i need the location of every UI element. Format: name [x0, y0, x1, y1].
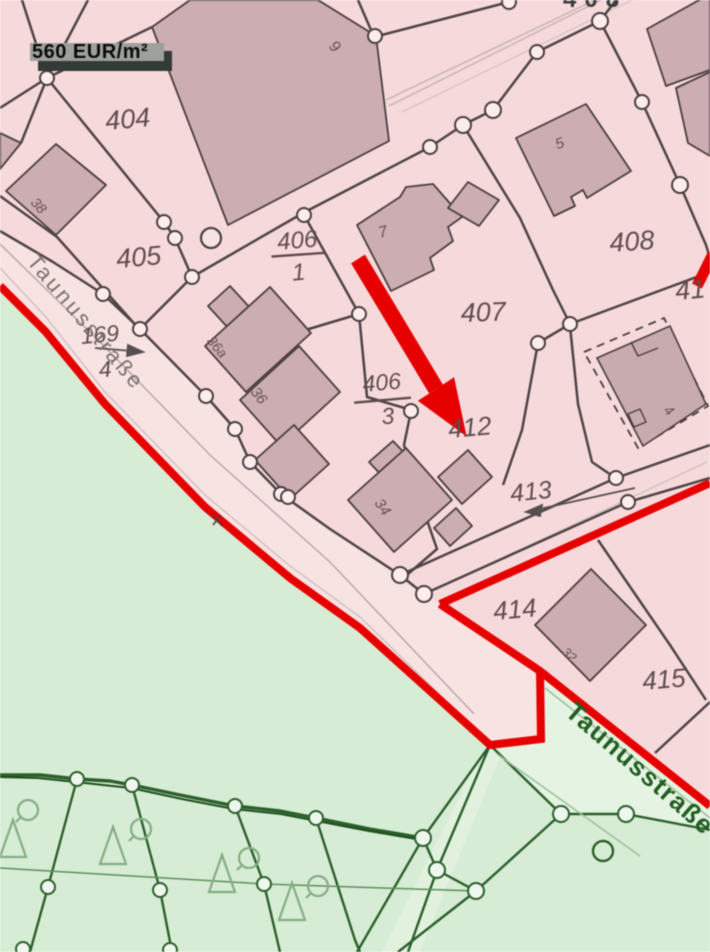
svg-text:560 EUR/m²: 560 EUR/m² [32, 41, 148, 63]
svg-text:407: 407 [460, 296, 507, 328]
svg-text:405: 405 [115, 240, 163, 274]
svg-text:408: 408 [563, 0, 627, 13]
svg-text:413: 413 [509, 476, 554, 508]
svg-text:404: 404 [104, 102, 152, 136]
svg-text:412: 412 [447, 410, 493, 444]
svg-text:1: 1 [291, 259, 307, 287]
svg-text:41: 41 [674, 273, 707, 306]
svg-text:406: 406 [361, 368, 402, 397]
svg-text:3: 3 [380, 402, 395, 429]
svg-text:408: 408 [608, 225, 655, 258]
svg-text:415: 415 [641, 662, 687, 696]
svg-text:414: 414 [492, 592, 538, 626]
svg-text:406: 406 [276, 225, 319, 255]
